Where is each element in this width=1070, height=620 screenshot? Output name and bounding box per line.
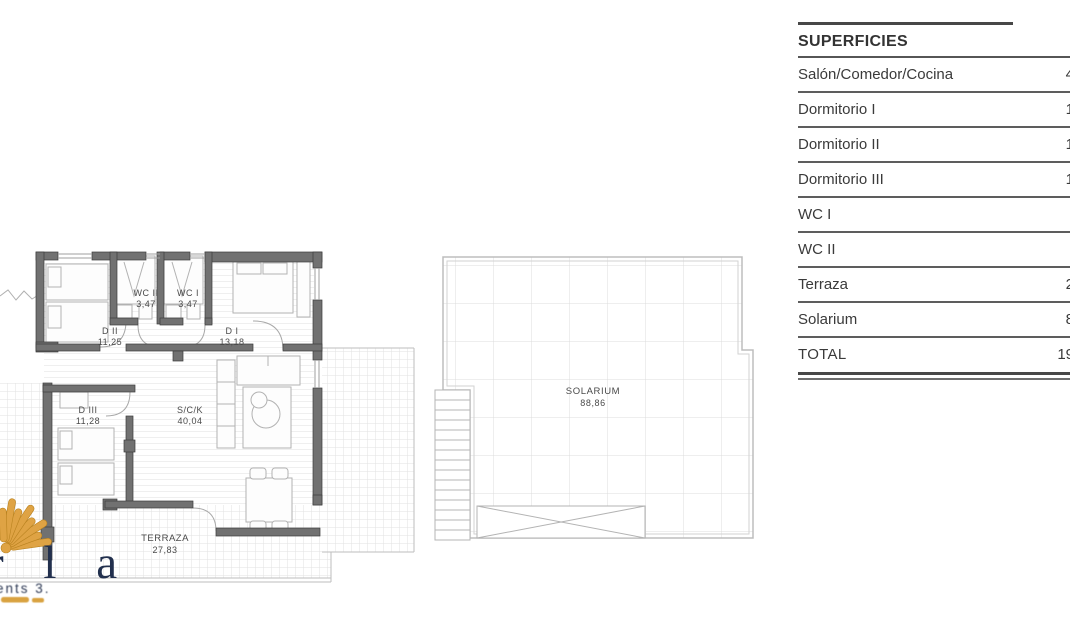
room-area: 88,86 xyxy=(580,398,606,408)
dining-table xyxy=(246,478,292,522)
surface-row: Dormitorio II 1 xyxy=(798,128,1070,163)
surface-value: 1 xyxy=(1066,163,1070,196)
surface-label: TOTAL xyxy=(798,346,846,363)
room-label: D III xyxy=(78,405,97,415)
room-label: SOLARIUM xyxy=(566,386,620,397)
surface-value: 8 xyxy=(1066,303,1070,336)
pillow xyxy=(48,267,61,287)
surface-row: WC II xyxy=(798,233,1070,268)
room-label: WC I xyxy=(177,288,199,298)
surface-label: Salón/Comedor/Cocina xyxy=(798,66,953,83)
logo-gold-text-fragment xyxy=(1,597,44,603)
surface-row: Dormitorio I 1 xyxy=(798,93,1070,128)
room-area: 11,28 xyxy=(76,416,100,426)
floor-plan-sheet: D II 11,25 WC II 3,47 WC I 3,47 D I 13,1… xyxy=(0,0,1070,620)
surface-row: Dormitorio III 1 xyxy=(798,163,1070,198)
stairs xyxy=(435,390,470,540)
wc-sink xyxy=(117,305,132,318)
boundary-break-mark xyxy=(0,290,40,300)
room-label: WC II xyxy=(134,288,159,298)
room-area: 3,47 xyxy=(136,299,156,309)
pillow xyxy=(263,263,287,274)
room-area: 40,04 xyxy=(177,416,202,426)
agency-logo: r l a ents 3. xyxy=(0,478,210,620)
superficies-table: SUPERFICIES Salón/Comedor/Cocina 4 Dormi… xyxy=(798,22,1070,380)
logo-tagline-fragment: ents 3. xyxy=(0,581,51,596)
room-area: 13,18 xyxy=(219,337,244,347)
room-area: 11,25 xyxy=(98,337,122,347)
surface-label: Terraza xyxy=(798,276,848,293)
surface-value: 1 xyxy=(1066,128,1070,161)
solarium-plan: SOLARIUM 88,86 xyxy=(435,257,753,540)
room-area: 3,47 xyxy=(178,299,198,309)
surface-value: 1 xyxy=(1066,93,1070,126)
sink-basin xyxy=(251,392,267,408)
pillow xyxy=(237,263,261,274)
surface-label: Dormitorio II xyxy=(798,136,880,153)
surface-value: 4 xyxy=(1066,58,1070,91)
chair xyxy=(250,468,266,479)
surface-row-total: TOTAL 19 xyxy=(798,338,1070,371)
surface-label: Dormitorio I xyxy=(798,101,876,118)
room-label: D I xyxy=(225,326,238,336)
pillow xyxy=(48,306,61,328)
surface-row: WC I xyxy=(798,198,1070,233)
pillow xyxy=(60,431,72,449)
surface-label: WC II xyxy=(798,241,836,258)
surface-value: 2 xyxy=(1066,268,1070,301)
room-label: D II xyxy=(102,326,118,336)
table-bottom-rule xyxy=(798,372,1070,375)
surface-row: Solarium 8 xyxy=(798,303,1070,338)
surface-label: WC I xyxy=(798,206,831,223)
surface-label: Solarium xyxy=(798,311,857,328)
surface-label: Dormitorio III xyxy=(798,171,884,188)
pergola-opening xyxy=(477,506,645,538)
chair xyxy=(272,468,288,479)
surface-value: 19 xyxy=(1057,338,1070,371)
room-label: S/C/K xyxy=(177,405,203,415)
wardrobe xyxy=(297,261,310,317)
surface-row: Salón/Comedor/Cocina 4 xyxy=(798,58,1070,93)
table-title: SUPERFICIES xyxy=(798,25,1070,58)
table-bottom-rule-2 xyxy=(798,378,1070,380)
surface-row: Terraza 2 xyxy=(798,268,1070,303)
